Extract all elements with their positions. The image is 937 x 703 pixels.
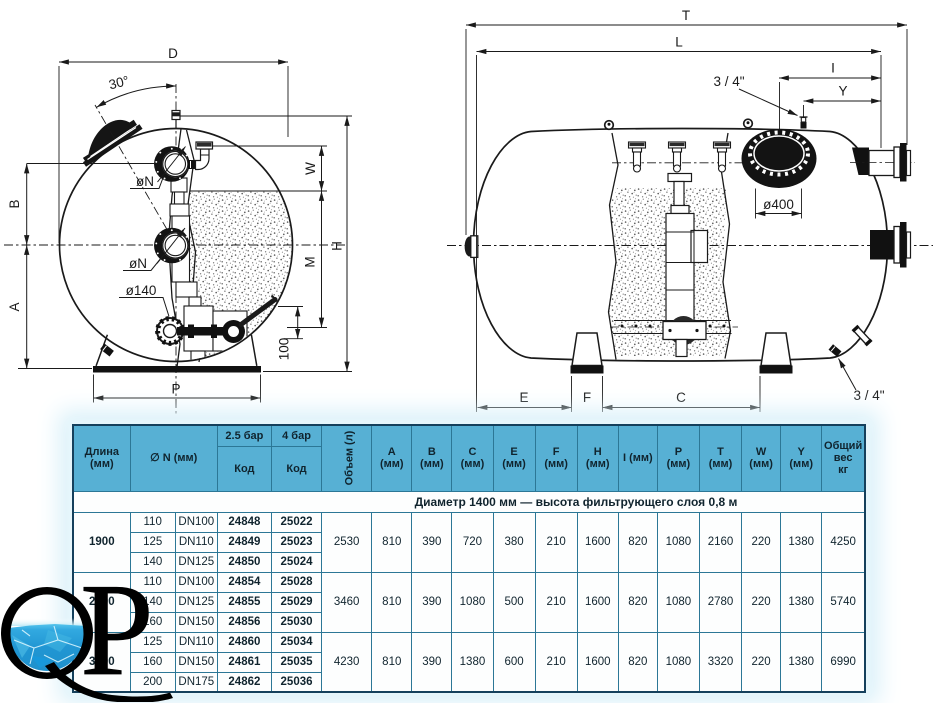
svg-text:B: B — [7, 199, 22, 208]
svg-text:ø400: ø400 — [763, 197, 794, 212]
svg-text:E: E — [519, 390, 528, 405]
svg-text:D: D — [168, 46, 178, 61]
svg-text:Y: Y — [838, 84, 847, 99]
svg-text:F: F — [583, 390, 591, 405]
svg-text:T: T — [682, 8, 690, 23]
svg-text:øN: øN — [129, 256, 147, 271]
svg-text:L: L — [675, 35, 683, 50]
svg-text:P: P — [171, 382, 180, 397]
svg-text:øN: øN — [136, 174, 154, 189]
svg-text:3 / 4": 3 / 4" — [713, 74, 744, 89]
svg-text:W: W — [303, 162, 318, 175]
svg-text:100: 100 — [277, 338, 292, 361]
svg-text:30°: 30° — [107, 73, 130, 92]
svg-text:C: C — [676, 390, 686, 405]
svg-text:M: M — [303, 256, 318, 267]
svg-text:ø140: ø140 — [126, 283, 157, 298]
svg-text:H: H — [330, 241, 345, 251]
svg-text:I: I — [831, 61, 835, 76]
svg-text:3 / 4": 3 / 4" — [853, 388, 884, 403]
svg-text:A: A — [7, 302, 22, 311]
